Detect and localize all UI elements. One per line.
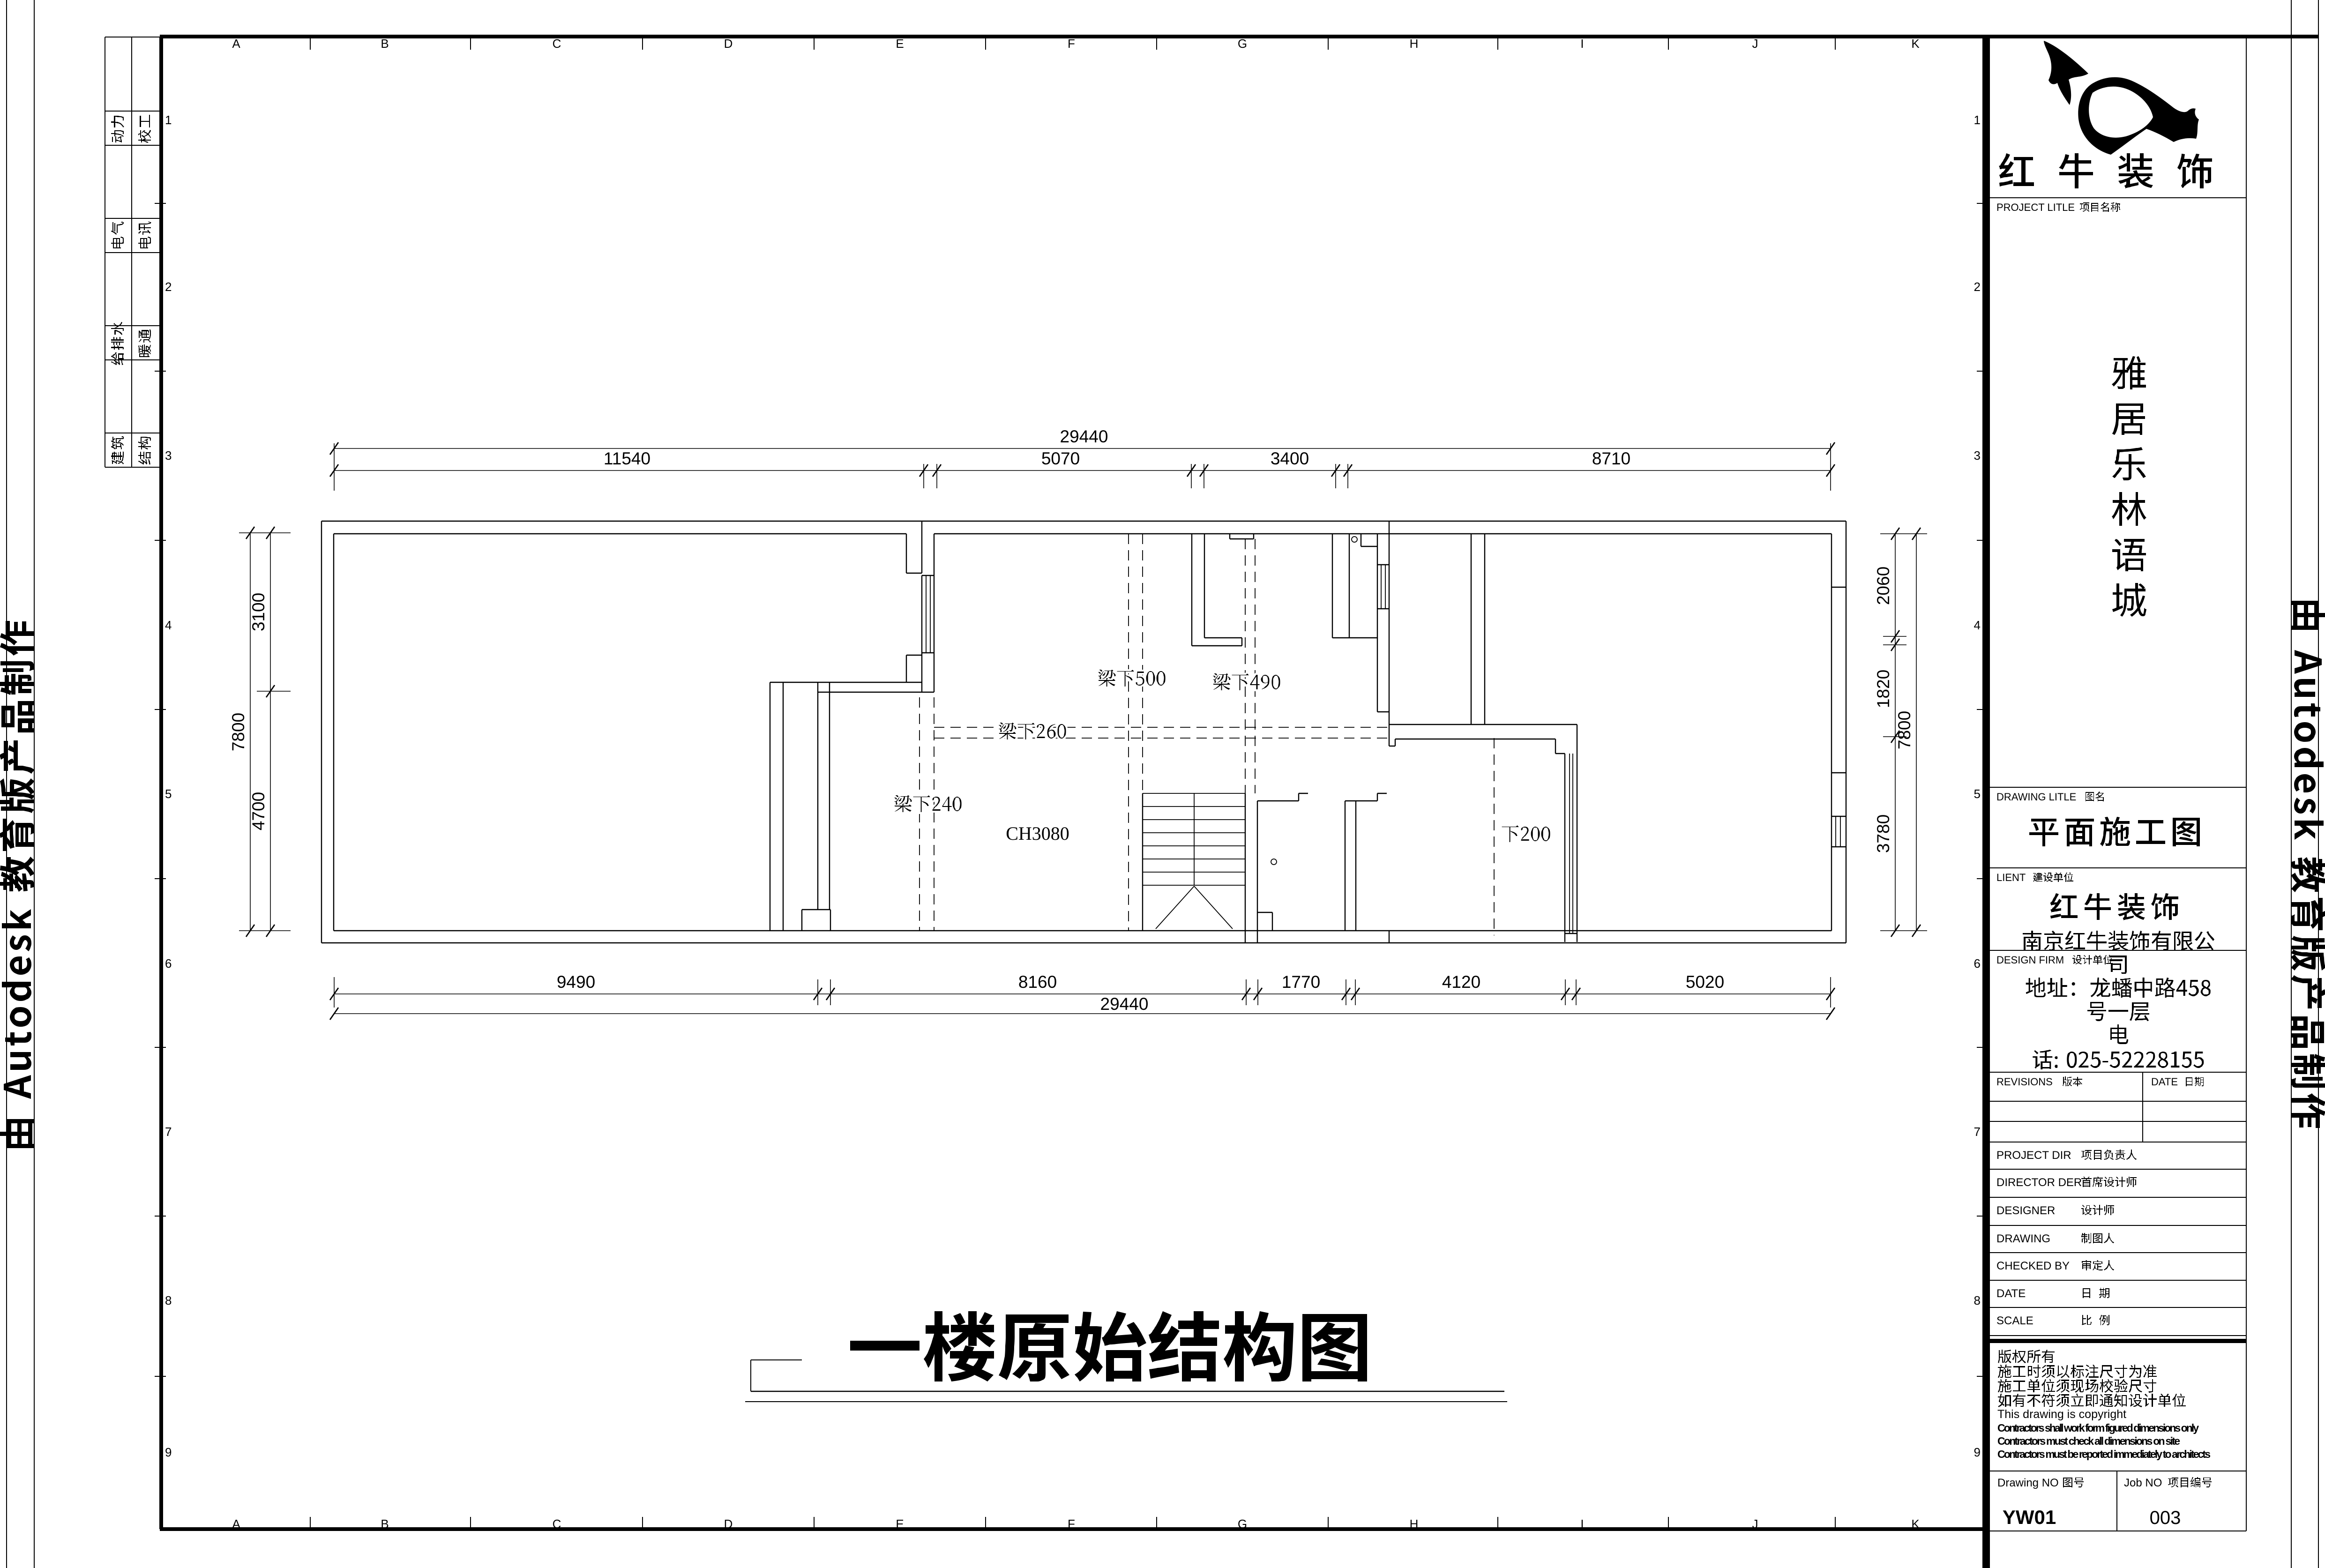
svg-text:11540: 11540	[604, 449, 650, 468]
svg-text:C: C	[553, 1517, 561, 1531]
svg-text:K: K	[1911, 1517, 1920, 1531]
svg-text:Contractors shall work form fi: Contractors shall work form figured dime…	[1997, 1422, 2199, 1434]
svg-text:5: 5	[165, 787, 172, 801]
svg-text:Contractors must be reported i: Contractors must be reported immediately…	[1997, 1448, 2211, 1460]
svg-text:H: H	[1410, 37, 1419, 51]
svg-text:E: E	[896, 1517, 904, 1531]
svg-text:I: I	[1580, 1517, 1584, 1531]
svg-text:6: 6	[165, 956, 172, 971]
svg-text:DATE: DATE	[2151, 1076, 2178, 1088]
svg-text:5: 5	[1974, 787, 1981, 801]
svg-text:K: K	[1911, 37, 1920, 51]
svg-text:DESIGNER: DESIGNER	[1996, 1204, 2055, 1217]
svg-text:1770: 1770	[1282, 972, 1320, 992]
svg-text:F: F	[1068, 37, 1075, 51]
svg-text:4120: 4120	[1442, 972, 1480, 992]
svg-text:DATE: DATE	[1996, 1287, 2026, 1300]
svg-text:9490: 9490	[557, 972, 595, 992]
svg-text:PROJECT LITLE: PROJECT LITLE	[1996, 202, 2075, 213]
svg-text:J: J	[1752, 37, 1758, 51]
svg-text:29440: 29440	[1060, 427, 1108, 446]
svg-text:3: 3	[1974, 448, 1981, 463]
svg-text:1: 1	[1974, 113, 1981, 127]
svg-text:7800: 7800	[1895, 711, 1914, 749]
svg-text:D: D	[724, 1517, 733, 1531]
svg-text:D: D	[724, 37, 733, 51]
svg-text:003: 003	[2150, 1508, 2181, 1528]
svg-text:DRAWING LITLE: DRAWING LITLE	[1996, 791, 2076, 803]
svg-text:B: B	[381, 37, 389, 51]
svg-text:7800: 7800	[229, 713, 248, 751]
svg-text:I: I	[1580, 37, 1584, 51]
svg-text:4: 4	[1974, 618, 1981, 632]
svg-text:DESIGN FIRM: DESIGN FIRM	[1996, 954, 2064, 966]
svg-text:C: C	[553, 37, 561, 51]
svg-text:This drawing is copyright: This drawing is copyright	[1997, 1408, 2126, 1421]
svg-text:CHECKED BY: CHECKED BY	[1996, 1260, 2070, 1272]
svg-text:DRAWING: DRAWING	[1996, 1232, 2050, 1245]
svg-text:REVISIONS: REVISIONS	[1996, 1076, 2053, 1088]
svg-text:9: 9	[165, 1445, 172, 1459]
svg-text:9: 9	[1974, 1445, 1981, 1459]
svg-text:5070: 5070	[1041, 449, 1080, 468]
svg-text:3400: 3400	[1271, 449, 1309, 468]
svg-text:LIENT: LIENT	[1996, 872, 2026, 883]
svg-text:8: 8	[165, 1293, 172, 1307]
svg-text:5020: 5020	[1686, 972, 1724, 992]
svg-text:Contractors must check all dim: Contractors must check all dimensions on…	[1997, 1435, 2180, 1447]
svg-text:B: B	[381, 1517, 389, 1531]
svg-text:SCALE: SCALE	[1996, 1314, 2033, 1327]
svg-text:A: A	[232, 37, 240, 51]
svg-text:3: 3	[165, 448, 172, 463]
svg-text:E: E	[896, 37, 904, 51]
svg-text:4: 4	[165, 618, 172, 632]
svg-text:DIRECTOR DER: DIRECTOR DER	[1996, 1176, 2082, 1189]
svg-text:3780: 3780	[1874, 814, 1893, 853]
svg-text:4700: 4700	[249, 792, 268, 830]
svg-text:H: H	[1410, 1517, 1419, 1531]
svg-text:2: 2	[165, 280, 172, 294]
svg-text:6: 6	[1974, 956, 1981, 971]
svg-text:J: J	[1752, 1517, 1758, 1531]
svg-text:8160: 8160	[1018, 972, 1057, 992]
svg-text:2: 2	[1974, 280, 1981, 294]
svg-text:8: 8	[1974, 1293, 1981, 1307]
svg-text:A: A	[232, 1517, 240, 1531]
svg-text:2060: 2060	[1874, 567, 1893, 605]
svg-text:7: 7	[1974, 1125, 1981, 1139]
svg-text:G: G	[1238, 37, 1247, 51]
svg-text:PROJECT DIR: PROJECT DIR	[1996, 1149, 2071, 1162]
svg-text:CH3080: CH3080	[1006, 823, 1069, 844]
svg-text:3100: 3100	[249, 593, 268, 631]
svg-text:7: 7	[165, 1125, 172, 1139]
svg-text:8710: 8710	[1592, 449, 1630, 468]
svg-text:G: G	[1238, 1517, 1247, 1531]
svg-text:29440: 29440	[1100, 994, 1149, 1014]
svg-text:1: 1	[165, 113, 172, 127]
svg-text:Job NO: Job NO	[2124, 1477, 2162, 1489]
svg-text:1820: 1820	[1874, 670, 1893, 708]
svg-text:F: F	[1068, 1517, 1075, 1531]
svg-text:Drawing NO: Drawing NO	[1997, 1477, 2059, 1489]
svg-text:YW01: YW01	[2003, 1506, 2056, 1528]
